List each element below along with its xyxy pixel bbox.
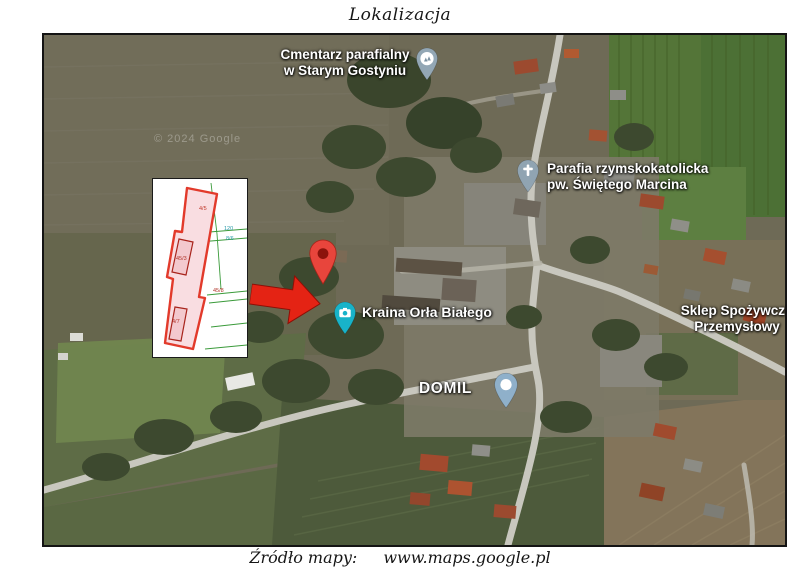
poi-label-sklep: Sklep Spożywczo Przemysłowy bbox=[662, 303, 787, 335]
poi-label-domil: DOMIL bbox=[419, 381, 472, 397]
camera-pin-icon bbox=[333, 301, 357, 340]
parcel-number-right: 45/8 bbox=[213, 288, 224, 294]
parcel-ref-a: 120 bbox=[224, 226, 233, 232]
map-source-caption: Źródło mapy:www.maps.google.pl bbox=[0, 548, 800, 567]
poi-label-parish: Parafia rzymskokatolicka pw. Świętego Ma… bbox=[547, 161, 708, 193]
poi-label-sklep-line2: Przemysłowy bbox=[662, 319, 787, 335]
page-title: Lokalizacja bbox=[0, 5, 800, 25]
cemetery-pin-icon bbox=[415, 47, 439, 86]
poi-label-cemetery: Cmentarz parafialny w Starym Gostyniu bbox=[279, 47, 411, 79]
parcel-ref-b: 8/6 bbox=[226, 236, 234, 242]
cadastral-drawing: 4/5 120 8/6 45/3 45/8 4/7 bbox=[153, 179, 247, 357]
map-source-label: Źródło mapy: bbox=[249, 548, 357, 567]
poi-label-cemetery-line1: Cmentarz parafialny bbox=[279, 47, 411, 63]
map-image: © 2024 Google Cmentarz parafialny w Star… bbox=[42, 33, 787, 547]
parcel-number-bottom: 4/7 bbox=[172, 319, 180, 325]
domil-pin-icon bbox=[493, 372, 519, 414]
cadastral-inset: 4/5 120 8/6 45/3 45/8 4/7 bbox=[152, 178, 248, 358]
poi-label-parish-line2: pw. Świętego Marcina bbox=[547, 177, 708, 193]
pointer-arrow bbox=[246, 268, 325, 334]
church-pin-icon bbox=[516, 159, 540, 198]
poi-label-cemetery-line2: w Starym Gostyniu bbox=[279, 63, 411, 79]
poi-label-parish-line1: Parafia rzymskokatolicka bbox=[547, 161, 708, 177]
poi-label-kraina: Kraina Orła Białego bbox=[362, 304, 492, 320]
map-source-url: www.maps.google.pl bbox=[383, 548, 550, 567]
poi-label-domil-line1: DOMIL bbox=[419, 381, 472, 397]
poi-label-kraina-line1: Kraina Orła Białego bbox=[362, 304, 492, 320]
google-watermark: © 2024 Google bbox=[154, 133, 241, 145]
parcel-number-top: 4/5 bbox=[199, 206, 207, 212]
poi-label-sklep-line1: Sklep Spożywczo bbox=[662, 303, 787, 319]
parcel-number-mid: 45/3 bbox=[176, 256, 187, 262]
